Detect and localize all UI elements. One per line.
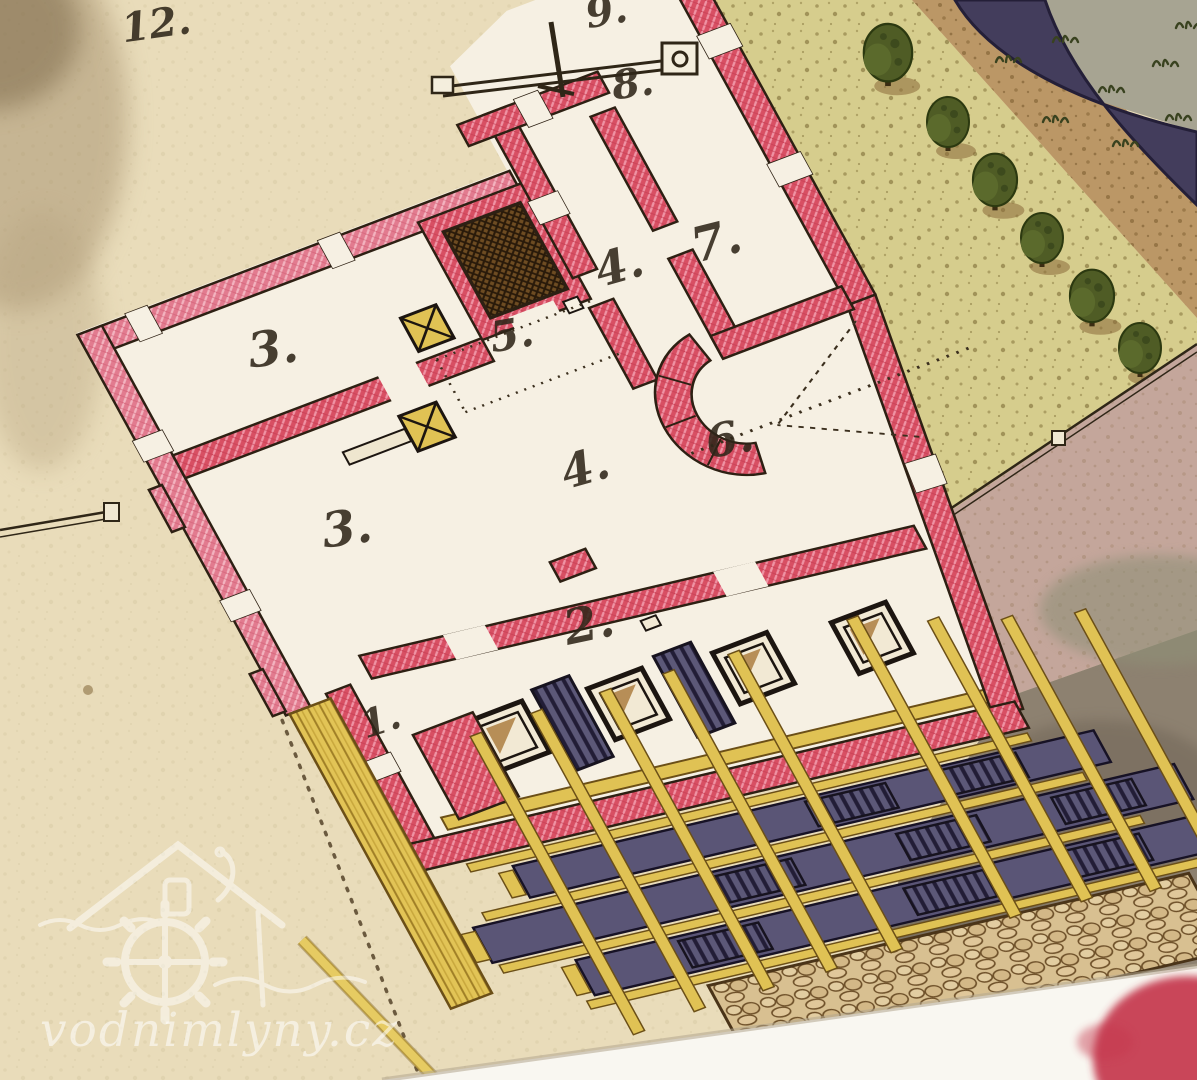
- fence-post: [104, 503, 119, 521]
- label-sluice-8: 8.: [608, 57, 657, 109]
- scanned-plan-page: 12. 9. 8. 7. 4. 5. 3. 6. 4. 3. 2. 1. vod…: [0, 0, 1197, 1080]
- label-room-5: 5.: [486, 306, 538, 362]
- ink-dot: [83, 685, 93, 695]
- floor-plan-svg: 12. 9. 8. 7. 4. 5. 3. 6. 4. 3. 2. 1. vod…: [0, 0, 1197, 1080]
- fence-post: [1052, 431, 1065, 445]
- label-room-3-upper: 3.: [244, 317, 301, 379]
- watermark-text: vodnimlyny.cz: [40, 1003, 399, 1058]
- gate-anchor: [432, 77, 453, 93]
- red-stain: [1077, 1024, 1133, 1060]
- label-room-6: 6.: [701, 408, 758, 470]
- label-room-3-lower: 3.: [318, 497, 375, 559]
- gate-box: [662, 43, 697, 74]
